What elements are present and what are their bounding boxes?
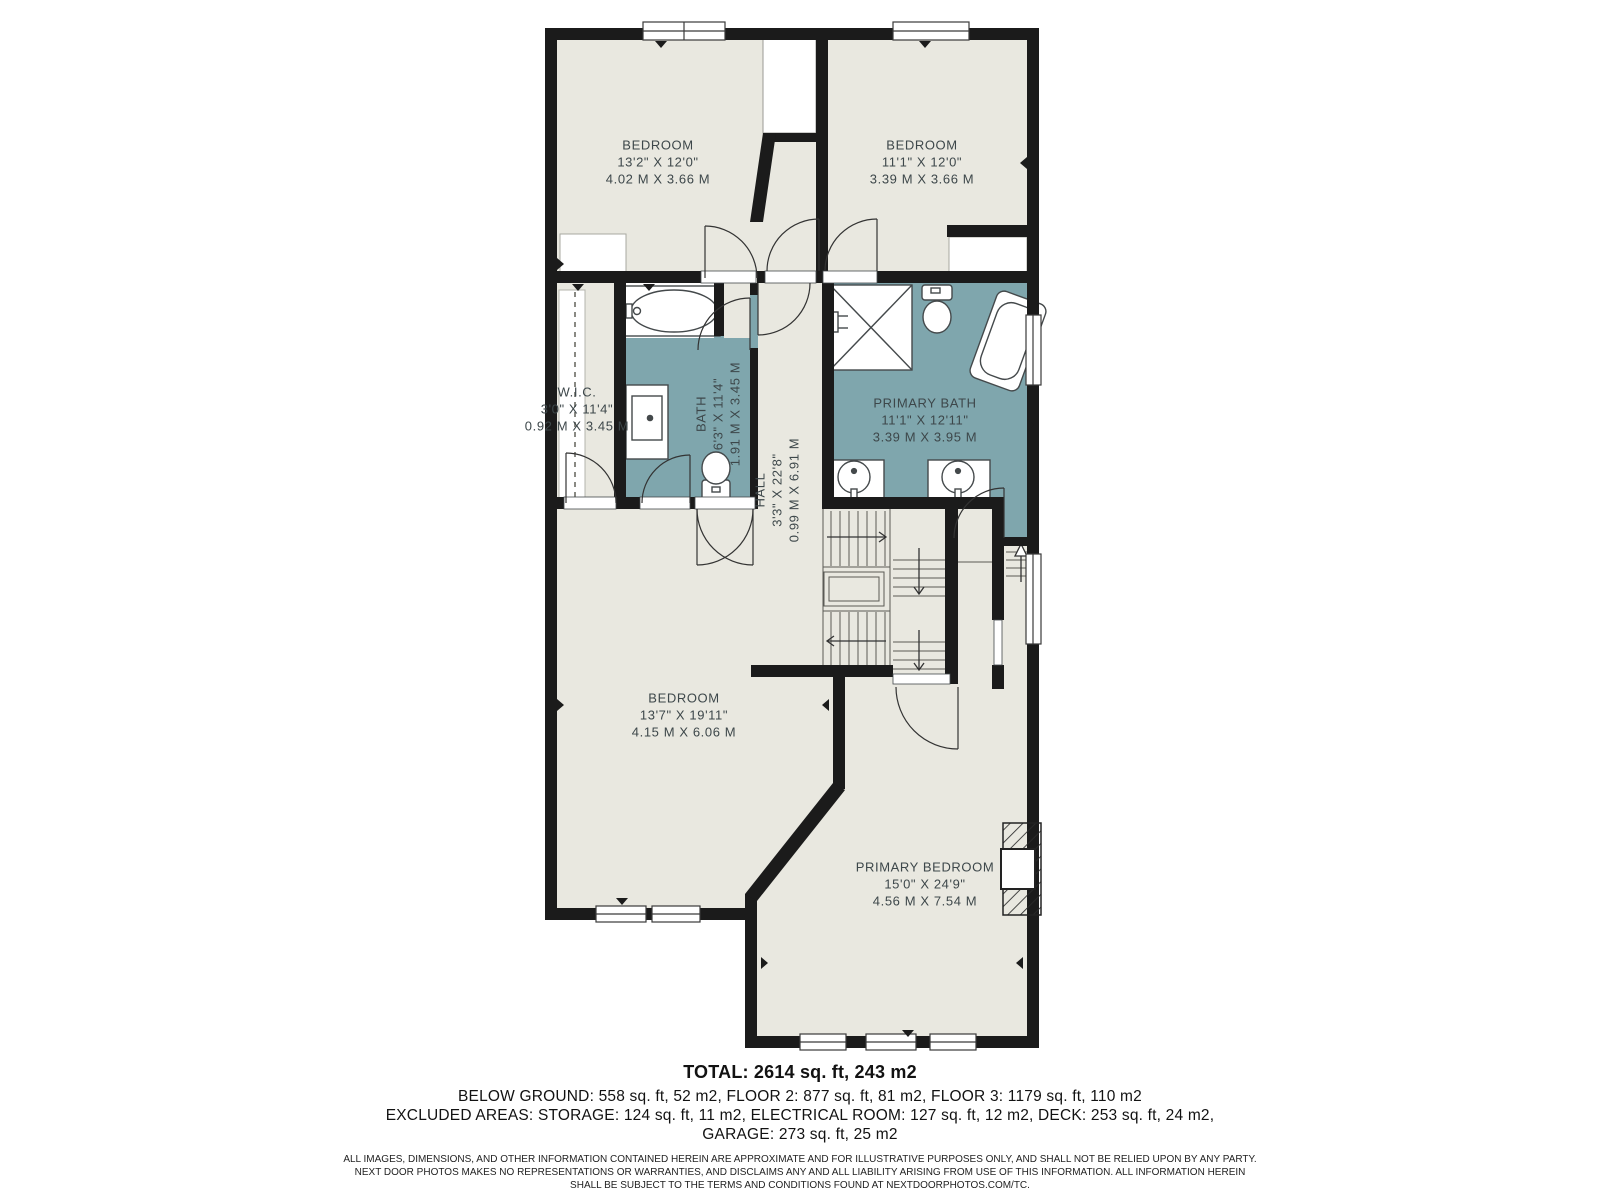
room-dim-metric: 4.02 M X 3.66 M: [606, 171, 710, 188]
room-dim-metric: 0.92 M X 3.45 M: [525, 418, 629, 435]
area-summary: TOTAL: 2614 sq. ft, 243 m2 BELOW GROUND:…: [0, 1062, 1600, 1192]
room-label-primary-bath: PRIMARY BATH 11'1" X 12'11" 3.39 M X 3.9…: [873, 395, 977, 446]
room-dim-imperial: 11'1" X 12'0": [870, 154, 974, 171]
room-name: BATH: [693, 362, 710, 466]
room-dim-imperial: 11'1" X 12'11": [873, 412, 977, 429]
disclaimer-line-3: SHALL BE SUBJECT TO THE TERMS AND CONDIT…: [240, 1179, 1360, 1192]
window-primary-bottom-3: [930, 1034, 976, 1050]
floor-areas-line: BELOW GROUND: 558 sq. ft, 52 m2, FLOOR 2…: [0, 1087, 1600, 1106]
room-dim-metric: 3.39 M X 3.95 M: [873, 429, 977, 446]
room-dim-imperial: 6'3" X 11'4": [710, 362, 727, 466]
room-label-wic: W.I.C. 3'0" X 11'4" 0.92 M X 3.45 M: [525, 384, 629, 435]
bath-vanity-sink: [626, 385, 668, 459]
floor-plan-drawing: [0, 0, 1600, 1200]
fireplace: [1001, 823, 1041, 915]
primary-shower: [830, 285, 912, 370]
bathtub: [624, 286, 720, 336]
room-label-bedroom-top-right: BEDROOM 11'1" X 12'0" 3.39 M X 3.66 M: [870, 137, 974, 188]
total-area: TOTAL: 2614 sq. ft, 243 m2: [0, 1062, 1600, 1083]
window-bedroom3-bottom-2: [652, 906, 700, 922]
room-name: BEDROOM: [870, 137, 974, 154]
room-label-primary-bedroom: PRIMARY BEDROOM 15'0" X 24'9" 4.56 M X 7…: [856, 859, 995, 910]
floor-plan-page: BEDROOM 13'2" X 12'0" 4.02 M X 3.66 M BE…: [0, 0, 1600, 1200]
window-landing-right: [1026, 554, 1041, 644]
primary-toilet: [922, 285, 952, 333]
room-name: BEDROOM: [606, 137, 710, 154]
room-dim-metric: 1.91 M X 3.45 M: [727, 362, 744, 466]
window-bedroom2-top: [893, 22, 969, 40]
room-dim-imperial: 3'3" X 22'8": [769, 438, 786, 542]
room-name: PRIMARY BATH: [873, 395, 977, 412]
disclaimer-line-2: NEXT DOOR PHOTOS MAKES NO REPRESENTATION…: [240, 1166, 1360, 1179]
excluded-areas-line: EXCLUDED AREAS: STORAGE: 124 sq. ft, 11 …: [0, 1106, 1600, 1125]
room-label-bedroom-lower-left: BEDROOM 13'7" X 19'11" 4.15 M X 6.06 M: [632, 690, 736, 741]
room-dim-imperial: 3'0" X 11'4": [525, 401, 629, 418]
room-dim-metric: 3.39 M X 3.66 M: [870, 171, 974, 188]
room-name: PRIMARY BEDROOM: [856, 859, 995, 876]
bedroom2-closet-shelf: [949, 237, 1027, 273]
room-dim-imperial: 15'0" X 24'9": [856, 876, 995, 893]
room-dim-imperial: 13'7" X 19'11": [632, 707, 736, 724]
window-primary-bath-right: [1026, 315, 1041, 385]
room-name: W.I.C.: [525, 384, 629, 401]
room-label-bedroom-top-left: BEDROOM 13'2" X 12'0" 4.02 M X 3.66 M: [606, 137, 710, 188]
room-name: HALL: [752, 438, 769, 542]
room-dim-metric: 4.56 M X 7.54 M: [856, 893, 995, 910]
room-label-bath: BATH 6'3" X 11'4" 1.91 M X 3.45 M: [693, 362, 744, 466]
primary-vanity-sink-1: [828, 460, 884, 499]
bedroom1-closet-shelf: [560, 234, 626, 276]
room-label-hall: HALL 3'3" X 22'8" 0.99 M X 6.91 M: [752, 438, 803, 542]
room-dim-imperial: 13'2" X 12'0": [606, 154, 710, 171]
window-bedroom1-top: [643, 22, 725, 40]
disclaimer-text: ALL IMAGES, DIMENSIONS, AND OTHER INFORM…: [240, 1153, 1360, 1192]
window-bedroom3-bottom-1: [596, 906, 646, 922]
window-primary-bottom-1: [800, 1034, 846, 1050]
disclaimer-line-1: ALL IMAGES, DIMENSIONS, AND OTHER INFORM…: [240, 1153, 1360, 1166]
room-dim-metric: 4.15 M X 6.06 M: [632, 724, 736, 741]
room-name: BEDROOM: [632, 690, 736, 707]
garage-area-line: GARAGE: 273 sq. ft, 25 m2: [0, 1125, 1600, 1144]
room-dim-metric: 0.99 M X 6.91 M: [786, 438, 803, 542]
